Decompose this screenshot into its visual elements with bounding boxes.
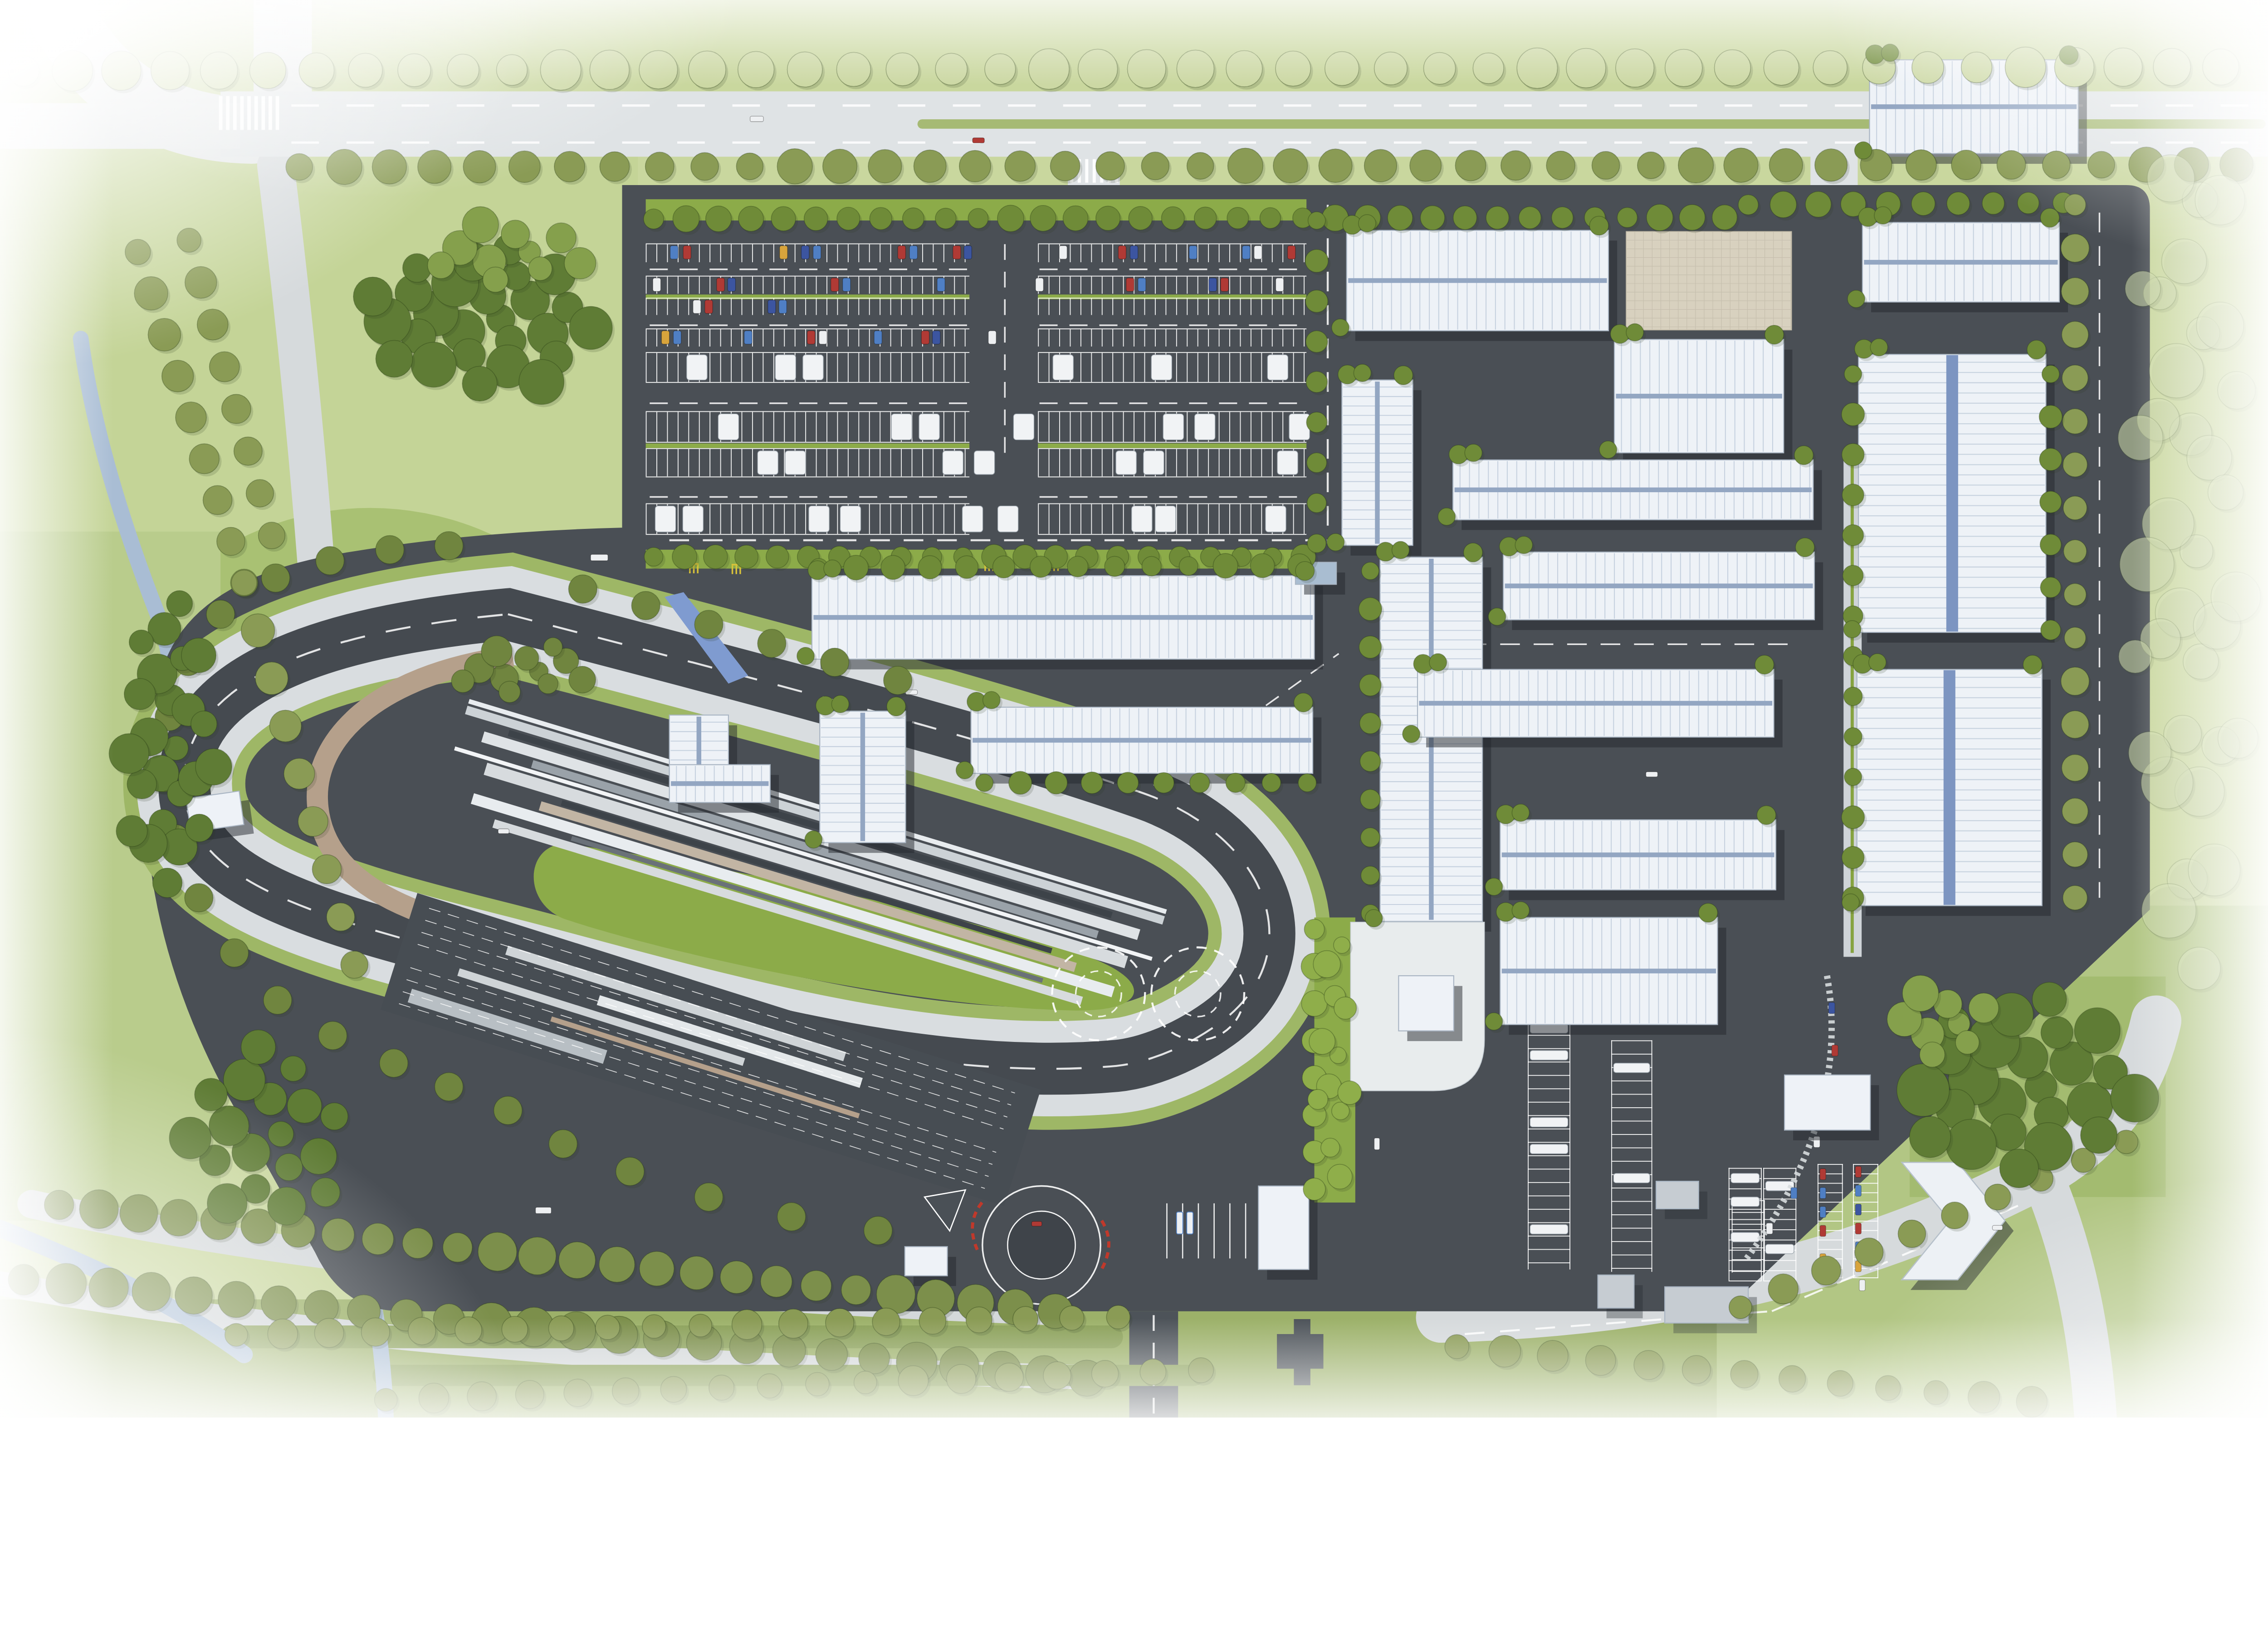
building-warehouse-b bbox=[1614, 339, 1792, 463]
building-warehouse-r1 bbox=[1862, 222, 2068, 312]
building-plaza-b bbox=[1626, 231, 1792, 330]
building-warehouse-l4b bbox=[670, 765, 779, 813]
building-warehouse-l3 bbox=[820, 711, 914, 853]
building-warehouse-r3 bbox=[1857, 670, 2051, 916]
site-plan-stage bbox=[0, 0, 2268, 1418]
building-warehouse-h4 bbox=[1500, 820, 1784, 900]
building-inspection-hall bbox=[1258, 1186, 1317, 1280]
aerial-master-plan-rendering bbox=[0, 0, 2268, 1418]
building-warehouse-a bbox=[1347, 230, 1617, 341]
building-warehouse-h5 bbox=[1500, 918, 1726, 1035]
building-warehouse-r2 bbox=[1858, 354, 2054, 642]
building-pavilion bbox=[1398, 976, 1462, 1041]
building-warehouse-c bbox=[1342, 380, 1421, 556]
building-warehouse-h2 bbox=[1503, 552, 1823, 630]
building-fuel-canopy bbox=[1784, 1075, 1879, 1140]
building-warehouse-h3 bbox=[1417, 670, 1783, 748]
building-warehouse-l1 bbox=[812, 576, 1323, 670]
building-warehouse-h1 bbox=[1453, 460, 1822, 530]
